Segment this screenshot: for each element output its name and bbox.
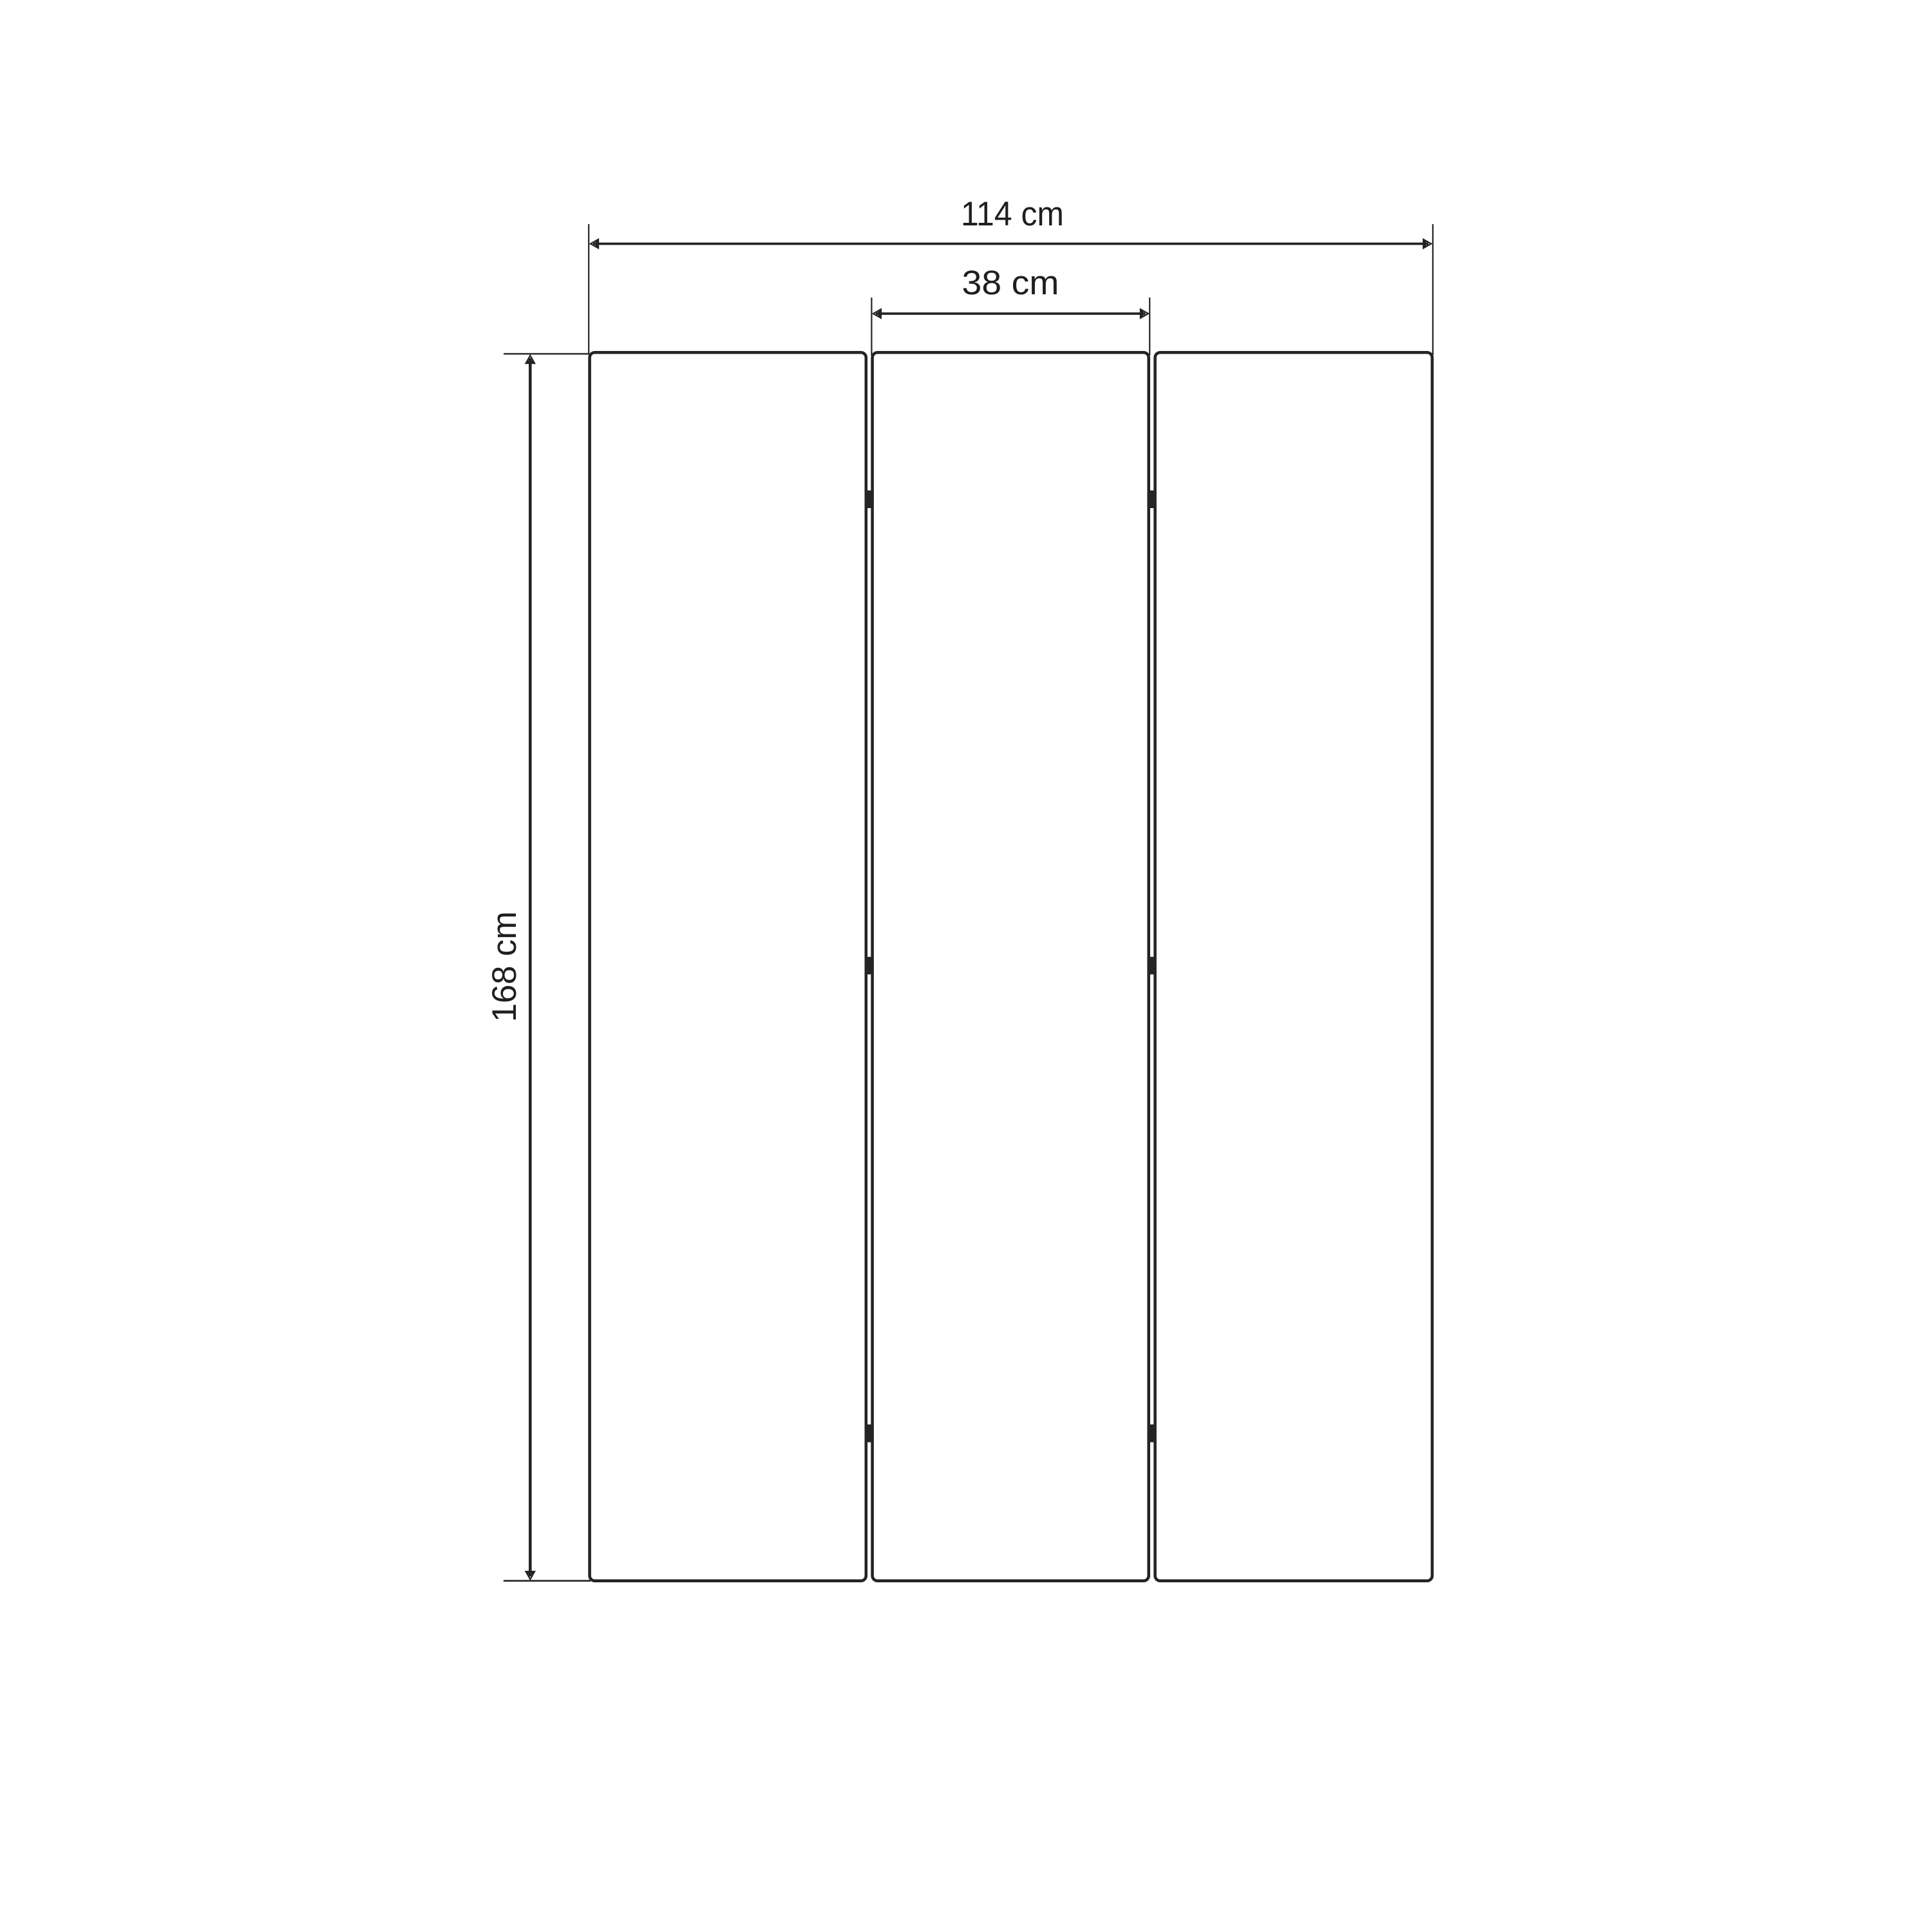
svg-text:168 cm: 168 cm bbox=[486, 911, 524, 1022]
svg-text:114 cm: 114 cm bbox=[961, 195, 1064, 233]
svg-text:38 cm: 38 cm bbox=[962, 264, 1059, 302]
